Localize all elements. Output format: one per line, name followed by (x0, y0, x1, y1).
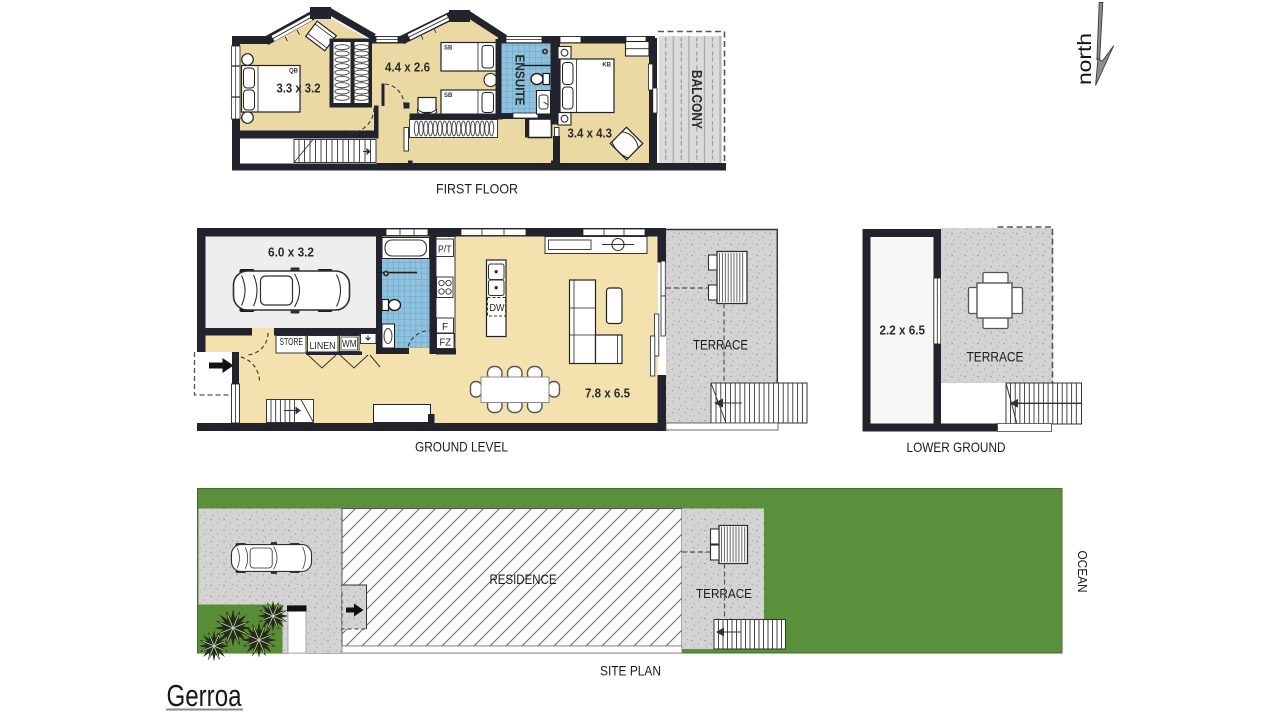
svg-text:3.4 x 4.3: 3.4 x 4.3 (568, 127, 613, 141)
svg-text:north: north (1075, 33, 1096, 85)
svg-text:SB: SB (444, 46, 453, 52)
svg-text:TERRACE: TERRACE (967, 349, 1024, 365)
svg-text:QB: QB (289, 69, 299, 75)
svg-text:FIRST FLOOR: FIRST FLOOR (436, 181, 518, 197)
svg-text:Gerroa: Gerroa (167, 678, 243, 713)
svg-text:F: F (442, 322, 448, 333)
svg-text:WM: WM (342, 339, 357, 350)
svg-text:BALCONY: BALCONY (688, 70, 704, 129)
svg-text:ENSUITE: ENSUITE (513, 55, 528, 106)
svg-text:7.8 x 6.5: 7.8 x 6.5 (585, 387, 630, 401)
svg-text:STORE: STORE (280, 336, 304, 348)
svg-text:OCEAN: OCEAN (1075, 551, 1090, 593)
svg-text:2.2 x 6.5: 2.2 x 6.5 (880, 324, 926, 338)
svg-text:SITE PLAN: SITE PLAN (600, 663, 661, 679)
svg-text:LINEN: LINEN (310, 340, 336, 352)
svg-text:FZ: FZ (440, 338, 452, 349)
svg-text:DW: DW (490, 303, 505, 314)
svg-text:SB: SB (444, 93, 453, 99)
svg-text:6.0 x 3.2: 6.0 x 3.2 (268, 246, 314, 260)
svg-text:P/T: P/T (438, 245, 452, 256)
svg-text:LOWER GROUND: LOWER GROUND (907, 439, 1006, 455)
svg-text:4.4 x 2.6: 4.4 x 2.6 (385, 61, 430, 75)
svg-text:TERRACE: TERRACE (693, 337, 748, 353)
svg-text:3.3 x 3.2: 3.3 x 3.2 (277, 82, 321, 96)
svg-text:KB: KB (602, 63, 611, 69)
svg-text:GROUND LEVEL: GROUND LEVEL (415, 439, 508, 455)
svg-text:RESIDENCE: RESIDENCE (490, 571, 557, 587)
